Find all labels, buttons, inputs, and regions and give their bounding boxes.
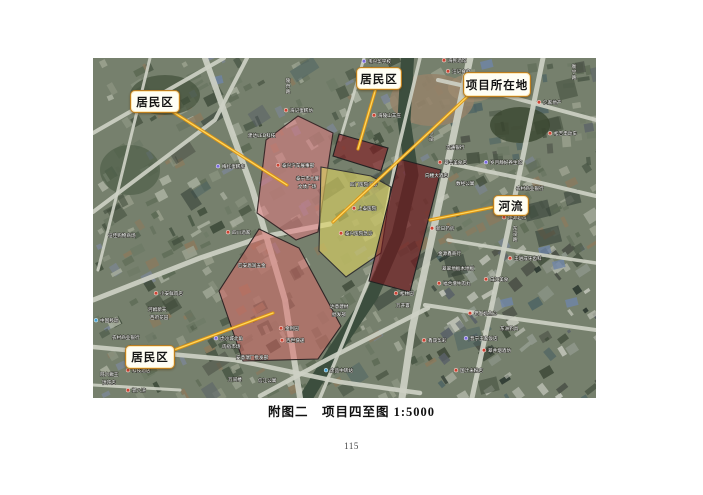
- poi-icon: [464, 336, 468, 340]
- poi-label: 鑫晟华彩: [428, 337, 447, 344]
- callout-label: 河流: [499, 198, 524, 214]
- poi-label: 中国移动: [100, 317, 119, 324]
- poi-icon: [226, 230, 230, 234]
- poi-label: 向楼大酒店: [425, 172, 448, 179]
- poi-label: 万间楼: [228, 376, 242, 383]
- poi-label: 白江美食: [490, 276, 509, 283]
- poi-icon: [372, 113, 376, 117]
- poi-icon: [279, 326, 283, 330]
- street-name-label: 路: [572, 74, 577, 81]
- poi-icon: [324, 368, 328, 372]
- poi-icon: [468, 311, 472, 315]
- poi-icon: [484, 277, 488, 281]
- poi-label: 王进成牙齿科: [514, 255, 542, 262]
- callout-label: 居民区: [360, 71, 398, 87]
- poi-label: 河姆新天: [148, 306, 167, 313]
- poi-label: 农村商业银行: [516, 185, 544, 192]
- poi-icon: [446, 69, 450, 73]
- street-name-label: 泾: [513, 230, 518, 237]
- poi-label: 海陵山羊庄: [378, 112, 401, 119]
- poi-label: 数经公寓: [456, 180, 475, 187]
- callout-project-site: 项目所在地: [463, 72, 531, 97]
- poi-label: 批发部: [332, 311, 346, 318]
- poi-icon: [339, 231, 343, 235]
- poi-label: 老大妈点心: [474, 310, 497, 317]
- poi-label: 翠翠地板木地板: [442, 265, 475, 272]
- page-number: 115: [0, 441, 703, 451]
- poi-label: 农村商业银行: [112, 334, 140, 341]
- poi-label: 泰兴汽车展事部: [282, 162, 315, 169]
- poi-label: 废品中转站: [330, 367, 353, 374]
- poi-label: 晋宁王家饭店: [470, 335, 498, 342]
- poi-label: 万开寰: [396, 302, 410, 309]
- poi-label: 翠丰美食店: [444, 159, 467, 166]
- poi-label: 翠井烟酒坊: [488, 347, 511, 354]
- callout-label: 居民区: [136, 94, 174, 110]
- poi-label: 海记蛋糕坊: [290, 107, 313, 114]
- street-name-label: 路: [513, 236, 518, 243]
- street-name-label: 东: [513, 225, 518, 232]
- callout-residential-area-sw: 居民区: [125, 345, 175, 369]
- callout-river: 河流: [493, 195, 529, 216]
- poi-label: 安意瑞厂批发部: [236, 354, 269, 361]
- street-name-label: 陵: [286, 77, 291, 84]
- poi-label: 四川酒家: [232, 229, 251, 236]
- callout-label: 居民区: [131, 349, 169, 365]
- poi-icon: [438, 160, 442, 164]
- poi-icon: [430, 226, 434, 230]
- poi-icon: [482, 348, 486, 352]
- poi-icon: [154, 291, 158, 295]
- poi-icon: [126, 388, 130, 392]
- poi-label: 亿家地产: [543, 99, 562, 106]
- poi-icon: [276, 163, 280, 167]
- poi-label: 泰宁市大厦: [296, 175, 319, 182]
- poi-label: 小安鲜肉店: [160, 290, 183, 297]
- satellite-map: 韦兴华学校海民酒馆汪记食府海记蛋糕坊建达LED科技梅红蛋糕房泰兴汽车展事部泰宁市…: [0, 0, 703, 495]
- street-name-label: 泾: [429, 135, 434, 142]
- poi-label: 建达LED科技: [248, 132, 276, 139]
- poi-label: 交通银行: [446, 144, 465, 151]
- poi-label: 福合增牛肉丸: [443, 280, 471, 287]
- poi-label: 国汁米粉店: [460, 367, 483, 374]
- poi-label: 金源鑫商行: [438, 250, 461, 257]
- poi-label: 郭八湾: [132, 387, 146, 394]
- callout-residential-area-nw: 居民区: [130, 90, 180, 113]
- poi-icon: [214, 336, 218, 340]
- poi-icon: [280, 338, 284, 342]
- street-name-label: 舟: [286, 82, 291, 89]
- poi-label: 馄饨店: [102, 379, 116, 386]
- poi-icon: [394, 291, 398, 295]
- poi-icon: [422, 338, 426, 342]
- poi-icon: [484, 160, 488, 164]
- poi-label: 文体广场: [298, 183, 317, 190]
- document-page: 韦兴华学校海民酒馆汪记食府海记蛋糕坊建达LED科技梅红蛋糕房泰兴汽车展事部泰宁市…: [0, 0, 703, 495]
- poi-label: 松林园: [400, 290, 414, 297]
- street-name-label: 宁: [572, 68, 577, 75]
- poi-icon: [284, 108, 288, 112]
- poi-icon: [94, 318, 98, 322]
- poi-icon: [437, 281, 441, 285]
- poi-label: 达意建材: [330, 303, 349, 310]
- poi-label: 阿六瘸王: [100, 371, 119, 378]
- poi-label: 泰兴医院急诊: [345, 230, 373, 237]
- poi-label: 梅红蛋糕房: [222, 163, 245, 170]
- poi-icon: [548, 131, 552, 135]
- poi-label: 肉宿市场: [222, 343, 241, 350]
- poi-icon: [362, 59, 366, 63]
- poi-label: 匹安恩润五金: [238, 262, 266, 269]
- poi-label: 海民酒馆: [448, 57, 467, 64]
- callout-label: 项目所在地: [466, 77, 529, 93]
- poi-label: 虎沙城北角: [220, 335, 243, 342]
- poi-label: 岁月静好养生馆: [490, 159, 523, 166]
- poi-icon: [454, 368, 458, 372]
- poi-icon: [442, 58, 446, 62]
- poi-label: 松吉电动车: [554, 130, 577, 137]
- street-name-label: 路: [286, 88, 291, 95]
- poi-label: 信江公寓: [258, 377, 277, 384]
- poi-label: 韦兴华学校: [368, 58, 391, 65]
- figure-caption: 附图二 项目四至图 1:5000: [0, 401, 703, 420]
- callout-residential-area-n: 居民区: [356, 67, 402, 90]
- poi-label: 东洲钓具: [500, 325, 519, 332]
- poi-label: 西府花园: [150, 314, 169, 321]
- poi-label: 金利园: [285, 325, 299, 332]
- poi-label: 百世快递: [286, 337, 305, 344]
- street-name-label: 衡: [572, 63, 577, 70]
- poi-label: 新日药房: [436, 225, 455, 232]
- poi-icon: [508, 256, 512, 260]
- poi-icon: [216, 164, 220, 168]
- poi-label: 征佳购物商场: [108, 232, 136, 239]
- poi-label: 上泰医院: [358, 205, 377, 212]
- poi-icon: [537, 100, 541, 104]
- poi-icon: [352, 206, 356, 210]
